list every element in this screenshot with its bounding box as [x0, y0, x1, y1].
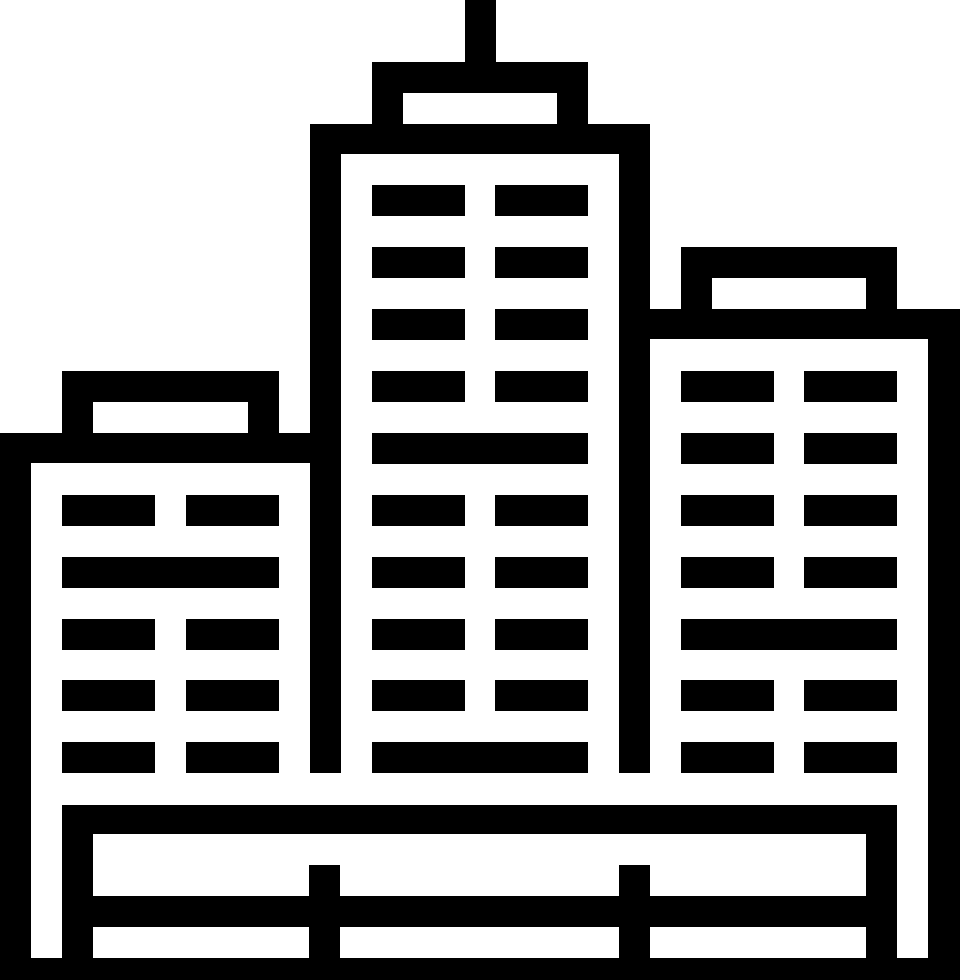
center-window [495, 619, 588, 650]
fence-right-post [866, 805, 897, 958]
center-window [372, 185, 465, 216]
left-window [62, 680, 155, 711]
left-window [62, 495, 155, 526]
fence-left-post [62, 805, 93, 958]
right-window [681, 433, 774, 464]
left-window-wide [62, 557, 279, 588]
right-window [681, 680, 774, 711]
icon-canvas [0, 0, 960, 980]
center-window [372, 247, 465, 278]
antenna [465, 0, 496, 62]
right-window [681, 742, 774, 773]
icon-svg-host [0, 0, 960, 980]
right-window [681, 371, 774, 402]
center-window [372, 680, 465, 711]
fence-bottom-rail [62, 896, 897, 927]
right-window [804, 742, 897, 773]
center-window [495, 371, 588, 402]
fence-top-rail [62, 805, 897, 834]
left-window [186, 495, 279, 526]
right-window [804, 371, 897, 402]
center-window [372, 309, 465, 340]
right-window-wide [681, 619, 897, 650]
center-window [495, 185, 588, 216]
left-window [186, 742, 279, 773]
center-roof-cap-opening [403, 93, 557, 124]
center-window-wide [372, 433, 588, 464]
center-window [495, 557, 588, 588]
right-window [804, 433, 897, 464]
left-window [186, 680, 279, 711]
center-window-wide [372, 742, 588, 773]
center-window [372, 557, 465, 588]
center-window [495, 309, 588, 340]
center-window [495, 247, 588, 278]
city-skyline-icon [0, 0, 960, 980]
left-window [62, 742, 155, 773]
left-window [186, 619, 279, 650]
center-window [372, 619, 465, 650]
ground-band [0, 958, 960, 980]
left-window [62, 619, 155, 650]
center-window [495, 495, 588, 526]
right-window [804, 680, 897, 711]
left-roof-box-opening [93, 402, 248, 433]
right-window [681, 495, 774, 526]
right-window [804, 495, 897, 526]
right-window [804, 557, 897, 588]
center-window [495, 680, 588, 711]
right-roof-box-opening [712, 278, 866, 309]
center-window [372, 495, 465, 526]
center-window [372, 371, 465, 402]
right-window [681, 557, 774, 588]
